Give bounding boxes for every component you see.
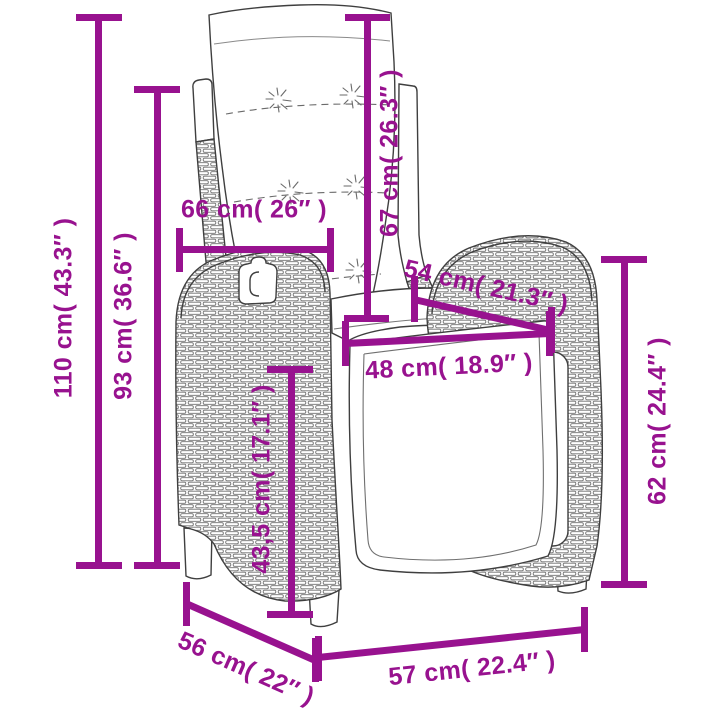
dim-backrest-height-label: 93 cm( 36.6″ )	[110, 232, 139, 400]
dim-total-height-cap-bottom	[76, 562, 122, 569]
dim-back-width-line	[179, 246, 331, 253]
dim-armrest-height-line	[621, 259, 628, 588]
dim-total-height-line	[95, 16, 102, 569]
backrest-frame-left	[193, 79, 214, 142]
dim-seat-height-cap-bottom	[267, 611, 313, 618]
dim-armrest-height-label: 62 cm( 24.4″ )	[644, 337, 673, 505]
dim-seat-width-cap-left	[342, 321, 349, 366]
dim-seat-width-cap-right	[546, 311, 553, 356]
dim-total-height-cap-top	[76, 14, 122, 21]
dim-armrest-height-cap-bottom	[601, 581, 647, 588]
dim-seat-height-line	[288, 369, 295, 618]
dim-cushion-height-cap-bottom	[344, 315, 389, 322]
dim-back-width-cap-right	[327, 228, 334, 272]
dim-total-height-label: 110 cm( 43.3″ )	[50, 218, 79, 399]
dim-seat-height-cap-top	[267, 366, 313, 373]
dim-back-width-cap-left	[176, 228, 183, 272]
dim-cushion-height-label: 67 cm( 26.3″ )	[376, 69, 405, 237]
dim-backrest-height-cap-top	[134, 86, 180, 93]
dim-cushion-height-line	[364, 14, 371, 322]
dim-depth-cap-left	[183, 582, 190, 626]
dim-back-width-label: 66 cm( 26″ )	[181, 196, 327, 225]
dim-armrest-height-cap-top	[601, 256, 647, 263]
dim-front-width-cap-right	[581, 607, 588, 652]
dim-cushion-height-cap-top	[345, 14, 390, 21]
dim-front-width-cap-left	[315, 636, 322, 681]
recline-handle-cutout	[239, 257, 277, 304]
dim-backrest-height-cap-bottom	[134, 562, 180, 569]
dim-seat-height-label: 43,5 cm( 17.1″ )	[248, 384, 277, 573]
product-dimension-diagram: 110 cm( 43.3″ ) 93 cm( 36.6″ ) 67 cm( 26…	[0, 0, 720, 720]
chair-illustration	[0, 0, 720, 720]
dim-backrest-height-line	[154, 88, 161, 569]
